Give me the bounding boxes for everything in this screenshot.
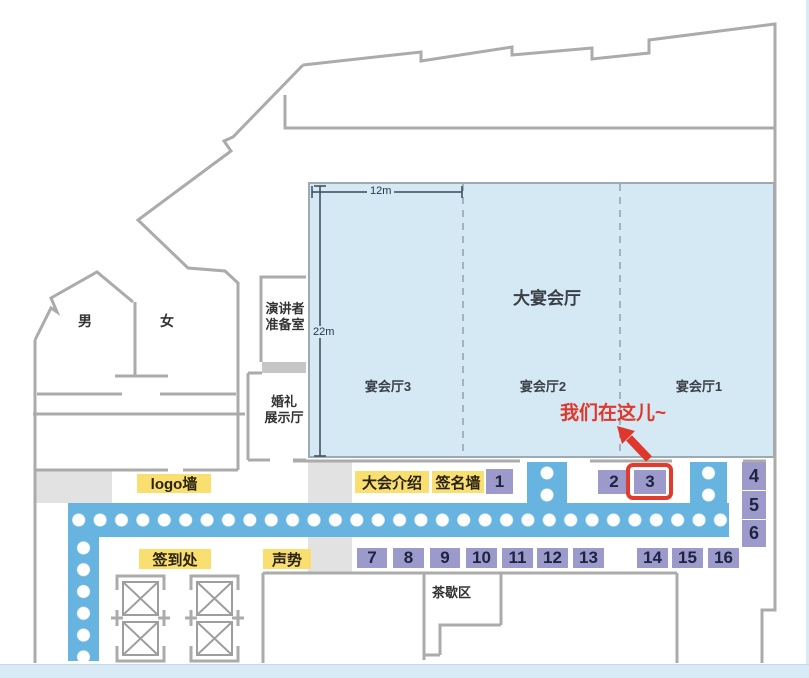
booth-6: 6 — [742, 520, 766, 547]
booth-3-highlight-box — [626, 463, 673, 500]
booth-1: 1 — [486, 469, 513, 494]
room-label-women: 女 — [160, 311, 174, 331]
speaker-prep-line1: 演讲者 — [265, 301, 304, 316]
label-check-in: 签到处 — [139, 549, 211, 569]
bottom-road-strip — [0, 664, 809, 678]
label-logo-wall: logo墙 — [137, 474, 211, 493]
room-label-men: 男 — [78, 311, 92, 331]
wedding-line1: 婚礼 — [271, 394, 297, 409]
label-conference-intro: 大会介绍 — [355, 471, 429, 493]
venue-floor-plan: 大宴会厅 宴会厅3 宴会厅2 宴会厅1 男 女 演讲者 准备室 婚礼 展示厅 茶… — [0, 0, 809, 678]
hall-section-3: 宴会厅3 — [348, 376, 428, 395]
wall-mass-between-rooms — [262, 362, 306, 373]
booth-14: 14 — [637, 548, 668, 568]
hall-height-dimension: 22m — [310, 326, 337, 338]
booth-15: 15 — [672, 548, 703, 568]
room-label-speaker-prep: 演讲者 准备室 — [262, 301, 308, 333]
booth-12: 12 — [537, 548, 568, 568]
elevator-icons — [123, 582, 232, 655]
hall-section-2: 宴会厅2 — [503, 376, 583, 395]
room-label-tea-break: 茶歇区 — [432, 582, 471, 601]
booth-13: 13 — [573, 548, 604, 568]
booth-5: 5 — [742, 491, 766, 519]
gray-block-left-of-corridor — [36, 470, 112, 503]
corridor-connector-left — [527, 462, 567, 503]
booth-16: 16 — [708, 548, 739, 568]
booth-4: 4 — [742, 462, 766, 490]
booth-8: 8 — [393, 548, 424, 568]
wedding-line2: 展示厅 — [264, 410, 303, 425]
booth-10: 10 — [466, 548, 497, 568]
hall-title: 大宴会厅 — [497, 284, 597, 309]
booth-9: 9 — [430, 548, 460, 568]
label-signature-wall: 签名墙 — [432, 471, 484, 493]
hall-section-1: 宴会厅1 — [659, 376, 739, 395]
label-sound: 声势 — [263, 549, 311, 569]
corridor-horizontal — [68, 503, 729, 537]
booth-7: 7 — [357, 548, 387, 568]
room-label-wedding-hall: 婚礼 展示厅 — [260, 394, 308, 426]
grand-banquet-hall — [308, 182, 775, 458]
hall-width-dimension: 12m — [367, 185, 394, 197]
booth-11: 11 — [502, 548, 533, 568]
we-are-here-callout: 我们在这儿~ — [560, 398, 666, 425]
speaker-prep-line2: 准备室 — [265, 317, 304, 332]
corridor-vertical-left — [68, 537, 99, 661]
corridor-connector-right — [690, 462, 727, 503]
